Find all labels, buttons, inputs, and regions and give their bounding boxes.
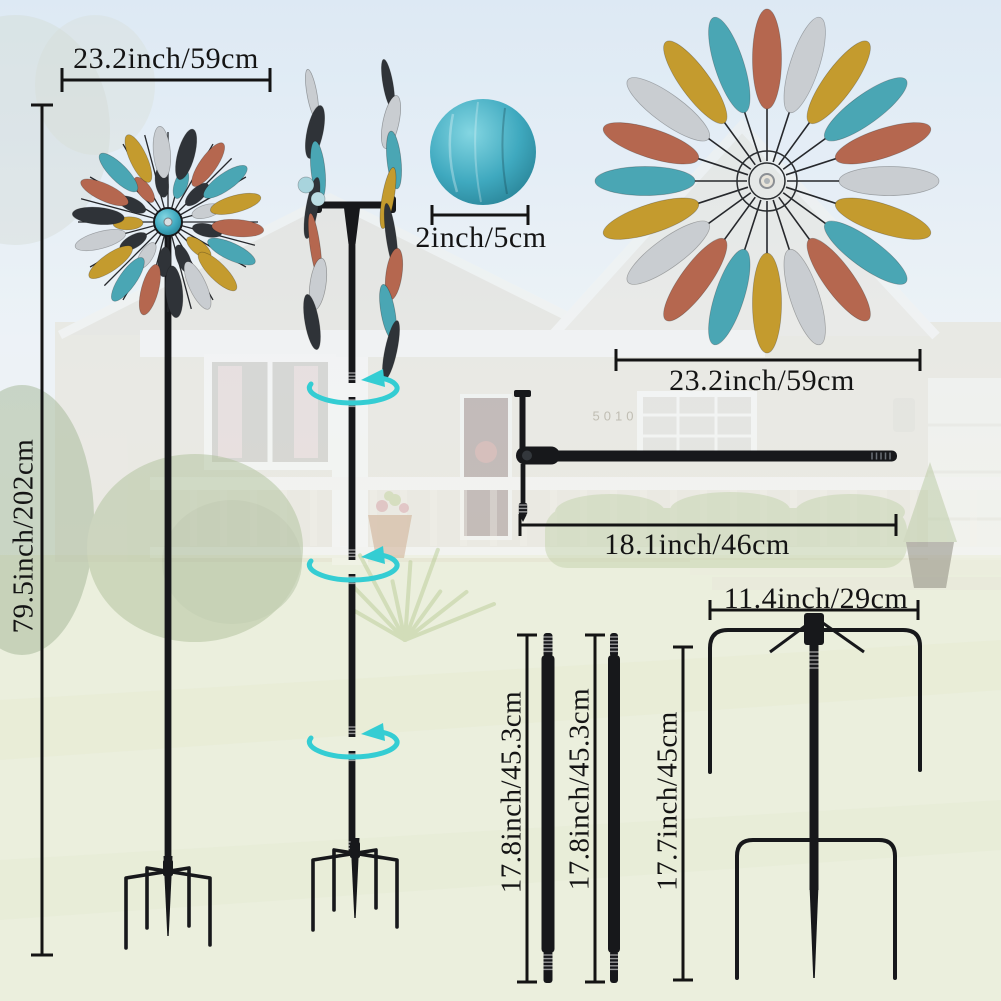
label-wheel-width: 23.2inch/59cm	[669, 364, 855, 398]
product-dimension-diagram: 23.2inch/59cm 79.5inch/202cm 2inch/5cm 2…	[0, 0, 1001, 1001]
label-stake-width: 11.4inch/29cm	[724, 582, 909, 616]
house-number: 5010	[593, 409, 638, 424]
pole-piece-1	[542, 633, 555, 983]
label-ball-diameter: 2inch/5cm	[415, 221, 546, 255]
label-pole1-length: 17.8inch/45.3cm	[496, 691, 529, 893]
label-pole2-length: 17.8inch/45.3cm	[564, 688, 597, 890]
hub-ball	[430, 99, 536, 205]
label-total-height: 79.5inch/202cm	[8, 439, 41, 634]
pole-piece-2	[608, 633, 620, 983]
label-crossbar-length: 18.1inch/46cm	[604, 528, 790, 562]
label-stake-height: 17.7inch/45cm	[652, 711, 685, 891]
label-spinner-width: 23.2inch/59cm	[73, 42, 259, 76]
